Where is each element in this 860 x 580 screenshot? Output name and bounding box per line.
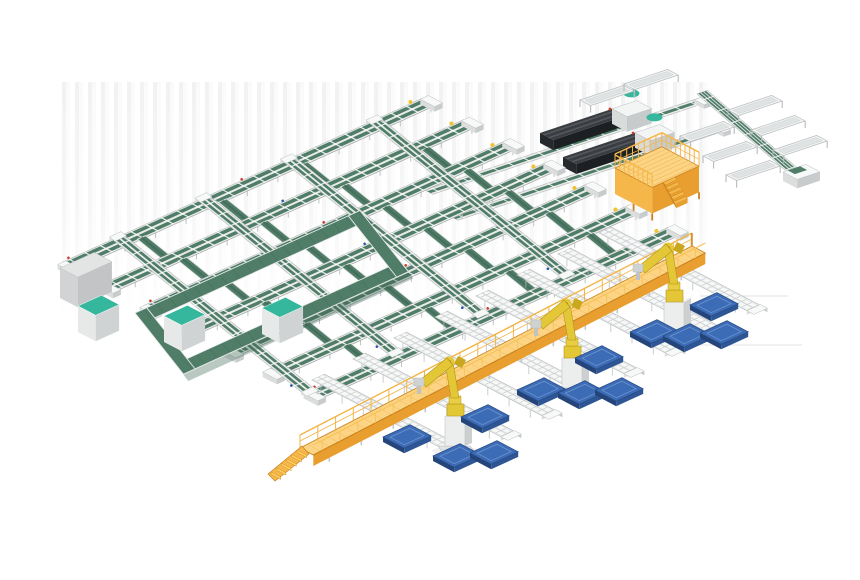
teal-top-cabinet xyxy=(164,305,205,351)
blue-pallet xyxy=(595,378,643,407)
scene-svg xyxy=(0,0,860,580)
walkway-stairs xyxy=(268,446,309,481)
factory-render xyxy=(0,0,860,580)
tray-table xyxy=(703,141,757,168)
blue-pallet xyxy=(470,441,518,470)
tray-table xyxy=(726,160,780,187)
